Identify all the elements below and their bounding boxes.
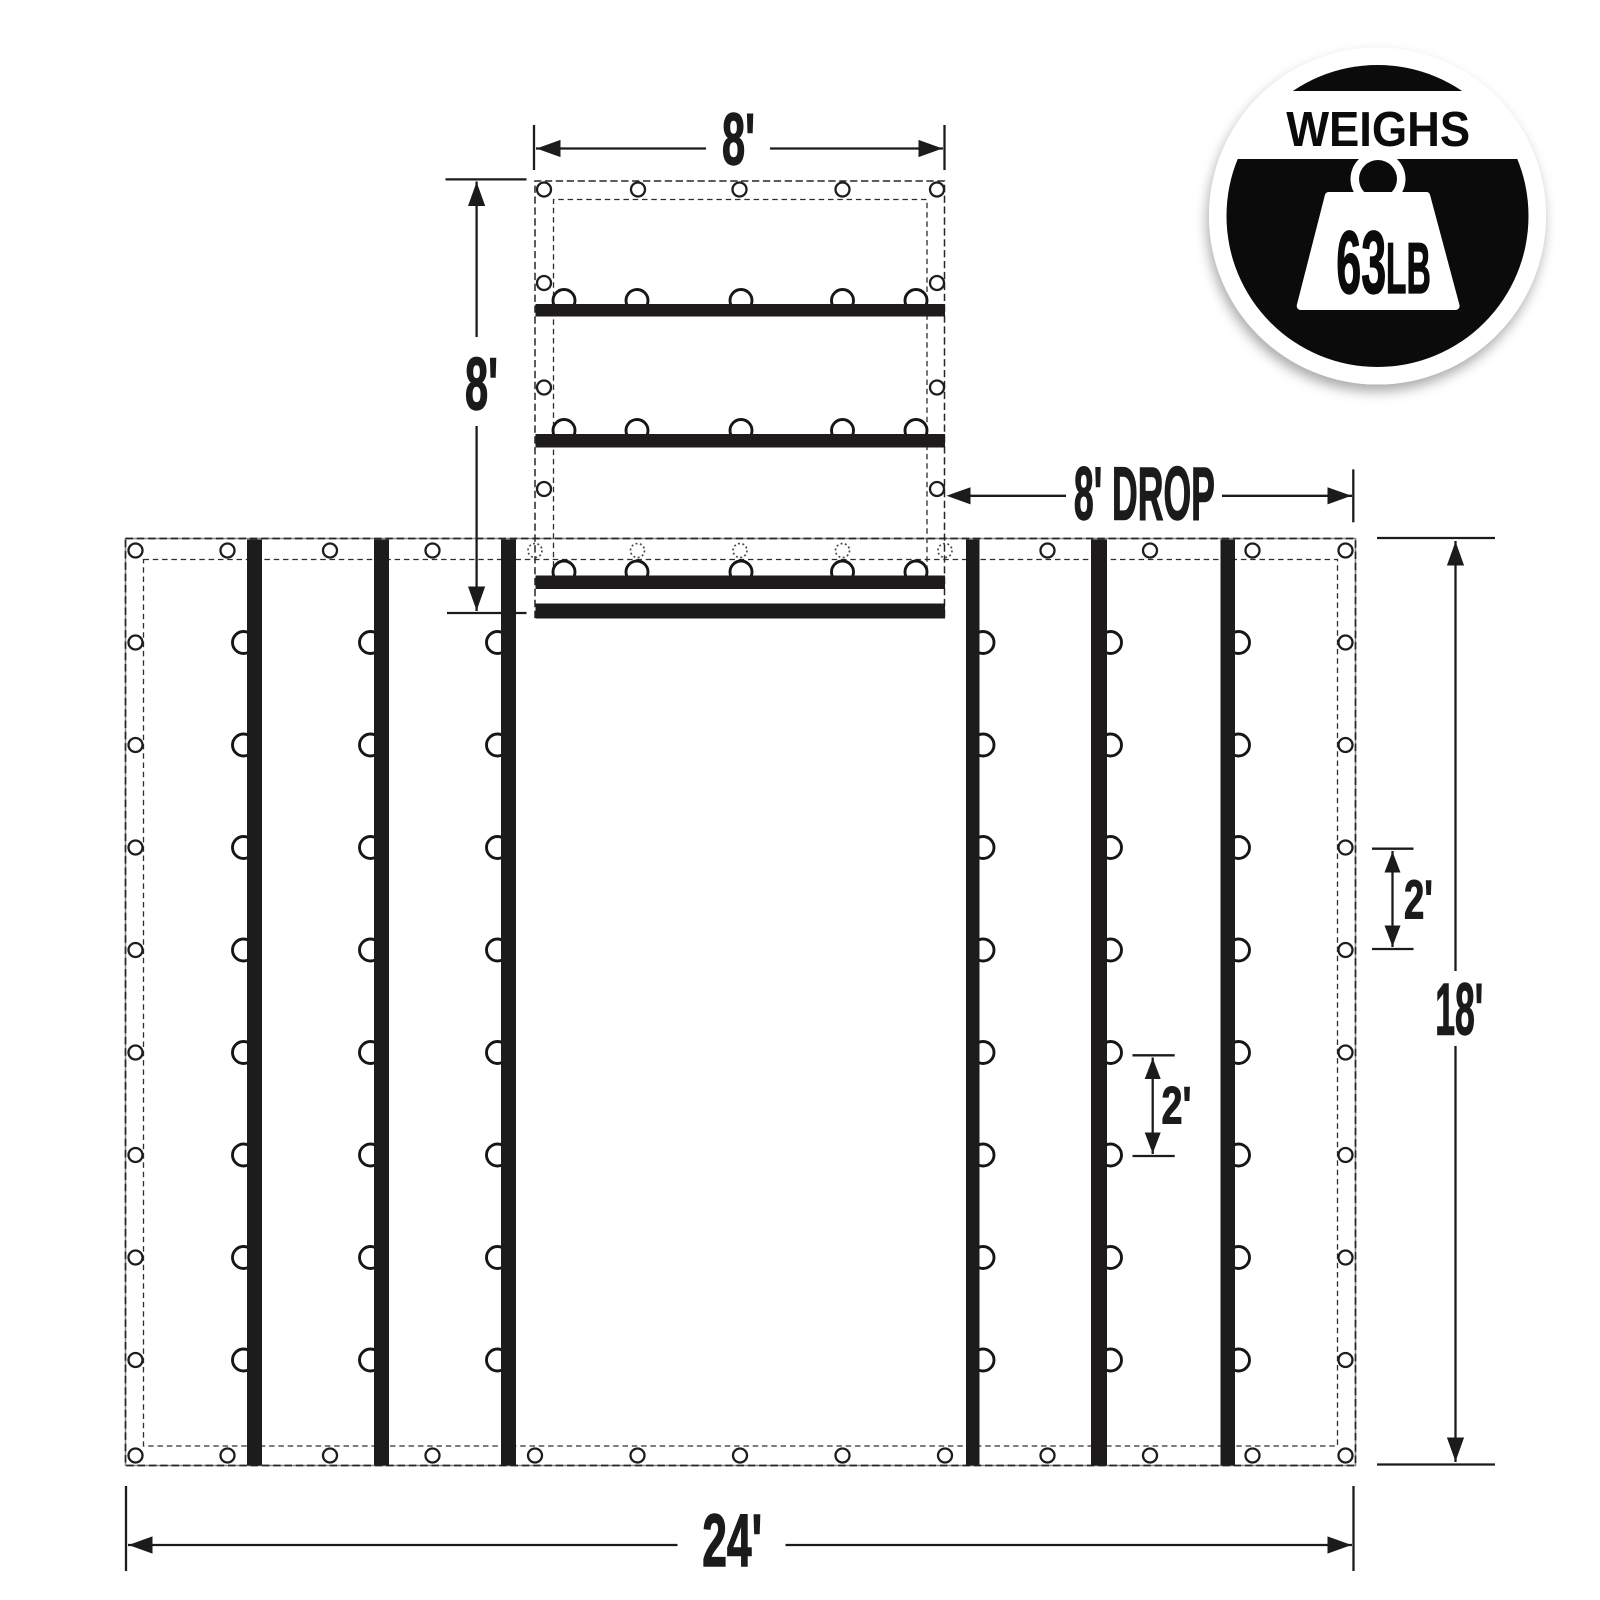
svg-text:18': 18' bbox=[1435, 970, 1483, 1051]
svg-text:2': 2' bbox=[1162, 1077, 1192, 1136]
svg-text:24': 24' bbox=[702, 1499, 762, 1582]
svg-text:2': 2' bbox=[1404, 870, 1433, 931]
svg-text:LB: LB bbox=[1386, 228, 1431, 309]
svg-text:WEIGHS: WEIGHS bbox=[1286, 102, 1470, 157]
svg-text:8': 8' bbox=[722, 99, 755, 180]
svg-text:8': 8' bbox=[465, 342, 498, 425]
svg-text:8' DROP: 8' DROP bbox=[1074, 451, 1215, 535]
svg-text:63: 63 bbox=[1336, 213, 1386, 312]
